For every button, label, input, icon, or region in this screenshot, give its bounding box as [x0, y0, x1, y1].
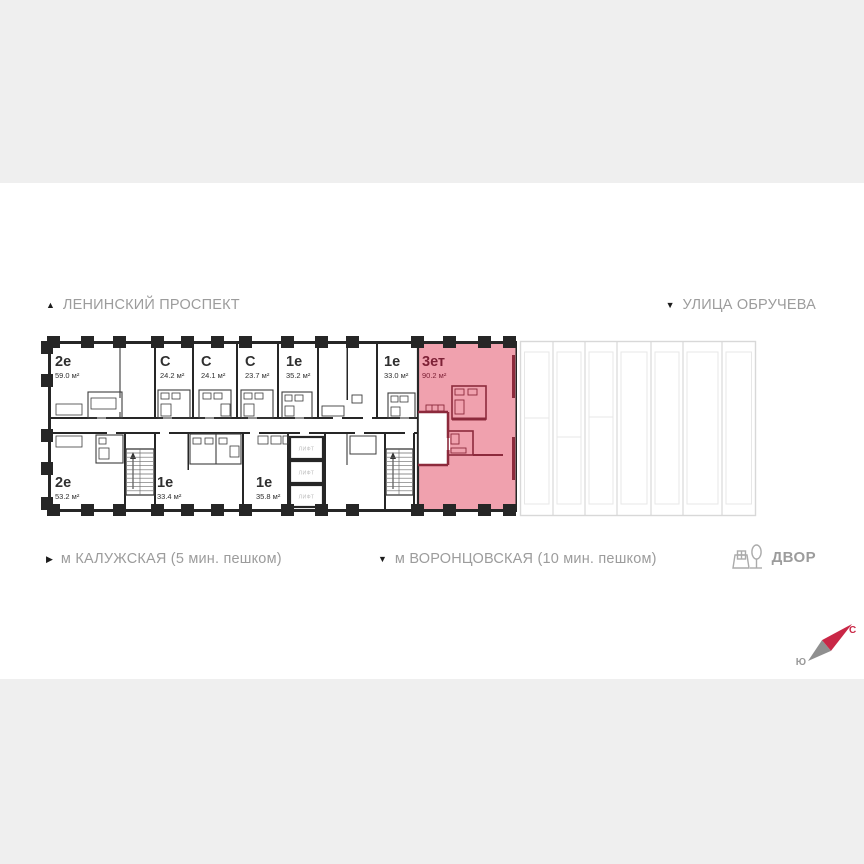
unit-type: 1е: [256, 475, 272, 491]
unit-type: 2е: [55, 354, 71, 370]
unit-type: 1е: [286, 354, 302, 370]
unit-top-4[interactable]: 1е 35.2 м²: [279, 344, 317, 417]
faded-section: [521, 342, 756, 516]
elevator-label-3: ЛИФТ: [299, 495, 315, 501]
unit-top-2[interactable]: С 24.1 м²: [194, 344, 236, 417]
selected-unit-entry: [418, 412, 450, 465]
unit-type: 1е: [384, 354, 400, 370]
compass-north-label: С: [849, 625, 856, 636]
unit-bottom-2[interactable]: 1е 35.8 м²: [244, 434, 287, 509]
compass-south-label: Ю: [796, 657, 806, 668]
unit-area: 23.7 м²: [245, 371, 270, 380]
stairwell-right: [386, 449, 413, 495]
elevator-core: ЛИФТ ЛИФТ ЛИФТ: [290, 437, 323, 507]
unit-top-3[interactable]: С 23.7 м²: [238, 344, 277, 417]
unit-area: 24.2 м²: [160, 371, 185, 380]
unit-type: С: [201, 354, 212, 370]
unit-top-5[interactable]: 1е 33.0 м²: [348, 344, 417, 417]
compass: С Ю: [796, 624, 857, 668]
unit-top-0[interactable]: 2е 59.0 м²: [50, 344, 154, 417]
elevator-label-2: ЛИФТ: [299, 471, 315, 477]
elevator-label-1: ЛИФТ: [299, 447, 315, 453]
unit-area: 35.2 м²: [286, 371, 311, 380]
unit-top-1[interactable]: С 24.2 м²: [156, 344, 192, 417]
unit-bottom-1[interactable]: 1е 33.4 м²: [156, 434, 242, 509]
unit-type: С: [160, 354, 171, 370]
unit-area: 35.8 м²: [256, 492, 281, 501]
unit-area: 59.0 м²: [55, 371, 80, 380]
unit-type: 2е: [55, 475, 71, 491]
stairwell-left: [126, 449, 154, 495]
unit-area: 24.1 м²: [201, 371, 226, 380]
unit-type: С: [245, 354, 256, 370]
unit-area: 33.4 м²: [157, 492, 182, 501]
unit-area: 90.2 м²: [422, 371, 447, 380]
unit-area: 53.2 м²: [55, 492, 80, 501]
unit-type: 3ет: [422, 354, 445, 370]
floor-plan: ЛИФТ ЛИФТ ЛИФТ: [0, 0, 864, 864]
unit-type: 1е: [157, 475, 173, 491]
unit-bottom-0[interactable]: 2е 53.2 м²: [50, 434, 124, 509]
unit-top-6-selected[interactable]: 3ет 90.2 м²: [422, 354, 447, 380]
unit-area: 33.0 м²: [384, 371, 409, 380]
